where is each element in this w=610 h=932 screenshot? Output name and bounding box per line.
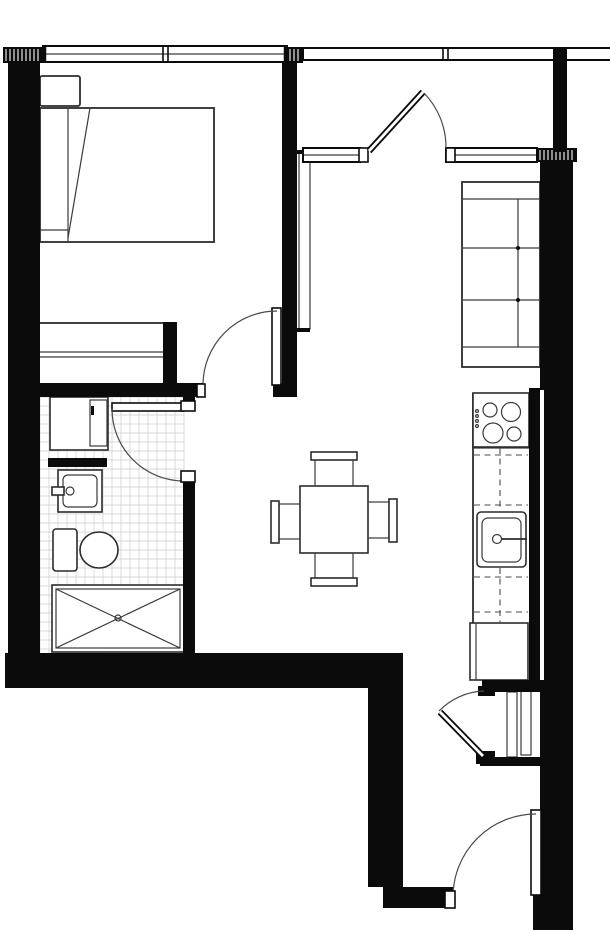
wall-hatch-left bbox=[3, 47, 43, 63]
bed-frame bbox=[40, 108, 214, 242]
sofa-outline bbox=[462, 182, 540, 367]
floor-plan-canvas bbox=[0, 0, 610, 932]
bathroom-right-wall-lower bbox=[183, 479, 195, 655]
entry-left-wall-block bbox=[383, 887, 453, 908]
bathroom-door-stop-top bbox=[181, 401, 195, 411]
hall-closet-door-leaf bbox=[440, 712, 483, 756]
bathroom-right-wall-upper bbox=[183, 383, 195, 403]
balcony-sill-left bbox=[303, 148, 360, 162]
wall-hatch-mid bbox=[287, 47, 303, 63]
entry-right-corner-block bbox=[533, 893, 573, 930]
balcony-sill-left-cap bbox=[359, 148, 368, 162]
wardrobe-side-wall-stub bbox=[163, 322, 177, 383]
bathroom-door-leaf bbox=[112, 403, 183, 411]
sofa-joint-dot-2 bbox=[516, 298, 520, 302]
bottom-exterior-wall bbox=[5, 653, 403, 688]
chair-top-seat bbox=[315, 460, 353, 486]
chair-top-back bbox=[311, 452, 357, 460]
right-wall-lower bbox=[540, 683, 573, 930]
tv-panel-mount-bottom bbox=[297, 328, 310, 332]
entry-door-swing bbox=[453, 814, 536, 897]
vanity-counter-edge bbox=[48, 458, 107, 467]
chair-right-back bbox=[389, 499, 397, 542]
bedroom-window bbox=[43, 45, 287, 63]
right-wall-upper bbox=[540, 162, 573, 390]
balcony-door-leaf bbox=[369, 92, 423, 151]
entry-door-jamb-cap bbox=[445, 891, 455, 908]
chair-left-seat bbox=[279, 504, 300, 539]
toilet-tank bbox=[53, 529, 77, 571]
corridor-left-wall bbox=[368, 683, 403, 887]
chair-bottom-seat bbox=[315, 553, 353, 578]
hall-closet-slide-panel-1 bbox=[507, 692, 517, 757]
tv-panel bbox=[299, 153, 310, 329]
chair-left-back bbox=[271, 501, 279, 543]
left-exterior-wall bbox=[8, 55, 40, 688]
balcony-side-wall-stub bbox=[553, 47, 567, 152]
chair-bottom-back bbox=[311, 578, 357, 586]
refrigerator bbox=[470, 623, 528, 680]
bathroom-top-wall bbox=[30, 383, 203, 397]
floor-plan-svg bbox=[0, 0, 610, 932]
dining-table bbox=[300, 486, 368, 553]
hall-closet-slide-panel-2 bbox=[521, 690, 531, 755]
sofa-joint-dot-1 bbox=[516, 246, 520, 250]
vanity-door-hinge bbox=[91, 406, 94, 415]
bed-fold-line bbox=[68, 108, 90, 238]
chair-right-seat bbox=[368, 502, 389, 538]
balcony-sill-right bbox=[446, 148, 537, 162]
bedroom-door-jamb-cap bbox=[197, 384, 205, 397]
bed-pillow bbox=[40, 76, 80, 106]
bathroom-door-stop-bottom bbox=[181, 471, 195, 482]
bedroom-door-swing bbox=[203, 311, 277, 385]
toilet-bowl bbox=[80, 532, 118, 568]
vanity-cabinet bbox=[50, 397, 108, 450]
balcony-sill-right-cap bbox=[446, 148, 455, 162]
wardrobe bbox=[39, 323, 168, 385]
bathroom-faucet bbox=[52, 487, 64, 495]
bedroom-right-wall bbox=[282, 60, 297, 397]
kitchen-chase-wall bbox=[529, 388, 540, 683]
right-wall-outer-mid bbox=[544, 390, 573, 690]
bedroom-door-leaf bbox=[272, 308, 281, 385]
balcony-door-swing bbox=[424, 93, 446, 148]
hall-closet-door-swing bbox=[439, 691, 484, 711]
entry-door-leaf bbox=[531, 810, 541, 895]
